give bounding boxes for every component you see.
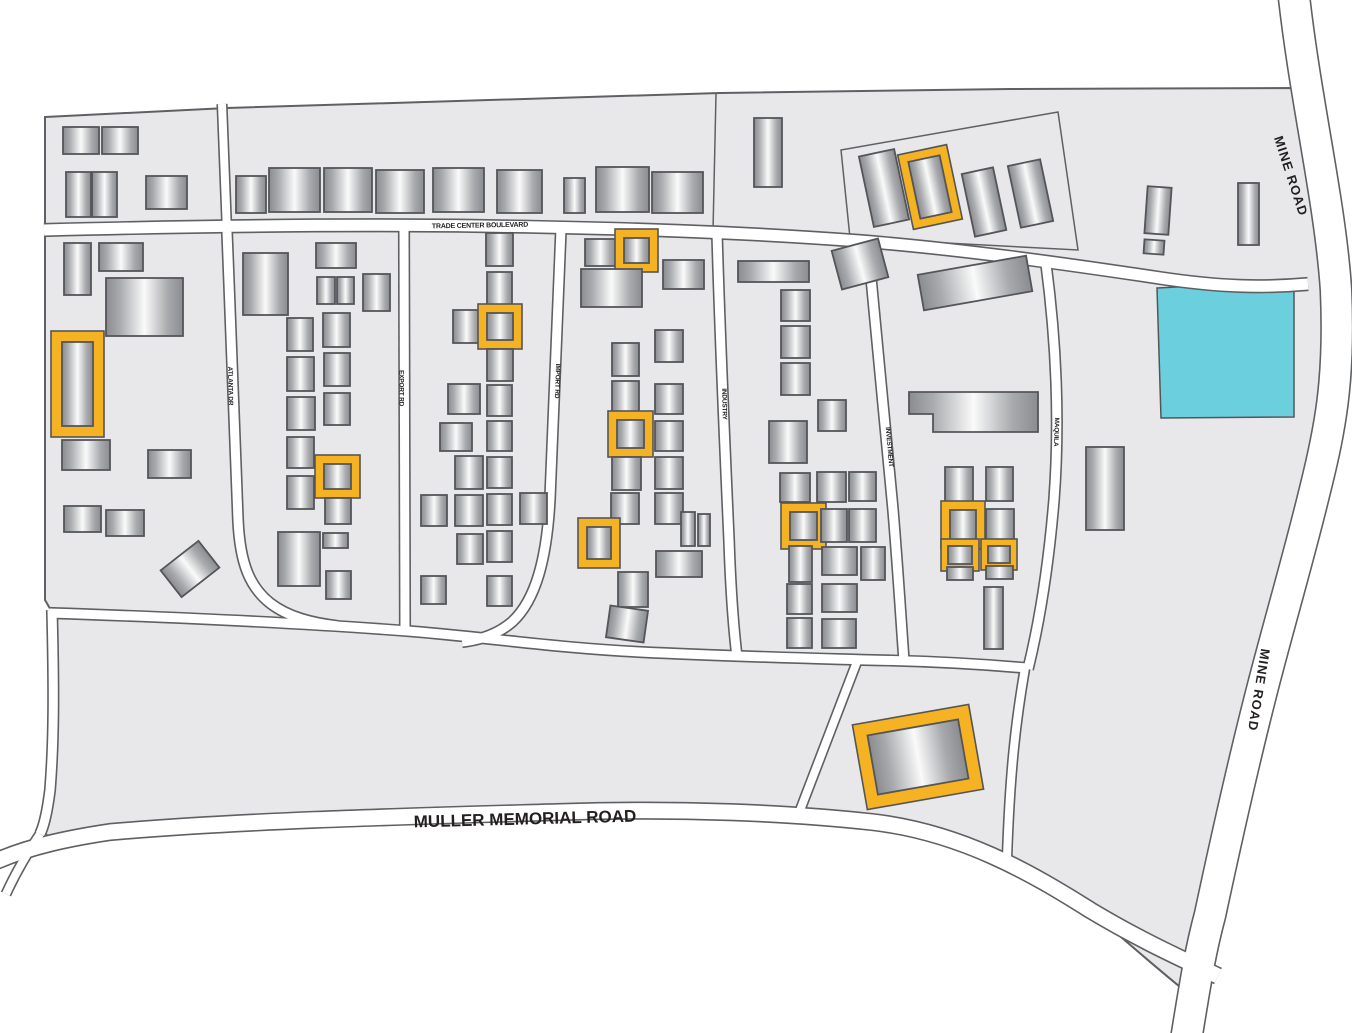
building[interactable] <box>618 572 648 607</box>
building-footprint <box>148 450 191 478</box>
building[interactable] <box>323 533 348 548</box>
building-footprint <box>457 534 483 564</box>
building-footprint <box>269 168 320 212</box>
building-footprint <box>421 495 447 526</box>
building-footprint <box>243 253 288 315</box>
building-footprint <box>323 313 350 347</box>
building[interactable] <box>1238 183 1259 245</box>
building-footprint <box>324 464 351 489</box>
building[interactable] <box>99 243 143 271</box>
building-footprint <box>287 318 313 351</box>
building[interactable] <box>453 310 480 343</box>
building[interactable] <box>487 421 512 451</box>
building-footprint <box>656 551 702 577</box>
building[interactable] <box>148 450 191 478</box>
building-footprint <box>323 533 348 548</box>
building-footprint <box>769 421 807 463</box>
building-footprint <box>612 457 641 490</box>
building[interactable] <box>606 606 648 643</box>
building-footprint <box>612 343 639 376</box>
building-footprint <box>440 423 472 451</box>
building[interactable] <box>596 167 649 212</box>
building-footprint <box>585 239 616 266</box>
building-footprint <box>655 330 683 362</box>
building[interactable] <box>324 353 350 386</box>
building[interactable] <box>236 176 266 213</box>
building-footprint <box>62 440 110 470</box>
building-footprint <box>421 576 446 604</box>
building-footprint <box>655 457 683 489</box>
highlighted-building[interactable] <box>578 518 620 568</box>
building[interactable] <box>433 168 484 212</box>
building-footprint <box>455 456 483 489</box>
building[interactable] <box>497 170 542 213</box>
building[interactable] <box>656 551 702 577</box>
building-footprint <box>363 274 390 311</box>
road-label: ATLANTA DR <box>226 367 234 406</box>
building-footprint <box>317 277 335 304</box>
building-footprint <box>821 509 847 542</box>
building-footprint <box>581 269 642 307</box>
building[interactable] <box>448 384 480 414</box>
building[interactable] <box>376 170 424 213</box>
road-export-rd <box>404 228 405 631</box>
building[interactable] <box>652 172 703 213</box>
building[interactable] <box>62 440 110 470</box>
building-footprint <box>947 567 973 580</box>
building-footprint <box>612 381 639 414</box>
road-label: IMPORT RD <box>553 364 561 399</box>
building-footprint <box>106 510 144 536</box>
building-footprint <box>663 260 704 289</box>
building-footprint <box>376 170 424 213</box>
building[interactable] <box>287 397 315 430</box>
building-footprint <box>92 172 117 217</box>
building[interactable] <box>63 127 99 154</box>
building[interactable] <box>64 506 101 532</box>
building[interactable] <box>92 172 117 217</box>
building-footprint <box>487 272 512 305</box>
highlighted-building[interactable] <box>615 229 658 272</box>
building-footprint <box>787 618 812 648</box>
building-footprint <box>287 357 314 391</box>
building-footprint <box>822 584 857 612</box>
building[interactable] <box>655 384 683 414</box>
building-footprint <box>316 243 356 268</box>
building[interactable] <box>787 618 812 648</box>
building[interactable] <box>324 168 372 212</box>
building-footprint <box>984 587 1003 649</box>
highlighted-building[interactable] <box>51 331 104 437</box>
building[interactable] <box>818 400 846 431</box>
road-label: MAQUILA <box>1052 417 1060 447</box>
building[interactable] <box>986 467 1013 501</box>
building-footprint <box>754 118 782 187</box>
building[interactable] <box>698 514 710 546</box>
building-footprint <box>1086 447 1124 530</box>
building[interactable] <box>487 576 512 606</box>
building-footprint <box>861 547 885 580</box>
building[interactable] <box>106 510 144 536</box>
building-footprint <box>487 349 513 381</box>
building[interactable] <box>789 546 812 582</box>
building-footprint <box>324 393 350 425</box>
building[interactable] <box>287 437 314 468</box>
building[interactable] <box>455 456 483 489</box>
building-footprint <box>781 326 810 358</box>
building-footprint <box>780 473 810 502</box>
building[interactable] <box>1086 447 1124 530</box>
building[interactable] <box>849 509 876 542</box>
building[interactable] <box>457 534 483 564</box>
building[interactable] <box>986 566 1013 579</box>
building-footprint <box>738 261 809 282</box>
building-footprint <box>618 572 648 607</box>
building-footprint <box>652 172 703 213</box>
cyan-parcel[interactable] <box>1157 281 1294 418</box>
road-label: INDUSTRY <box>720 388 728 420</box>
building[interactable] <box>769 421 807 463</box>
building[interactable] <box>337 277 354 304</box>
building[interactable] <box>564 178 585 213</box>
building[interactable] <box>781 363 810 395</box>
building[interactable] <box>612 343 639 376</box>
building[interactable] <box>487 531 512 562</box>
building-footprint <box>986 566 1013 579</box>
building-footprint <box>487 421 512 451</box>
building-footprint <box>822 547 857 575</box>
building-footprint <box>64 506 101 532</box>
building[interactable] <box>287 357 314 391</box>
building-footprint <box>681 512 695 546</box>
building-footprint <box>789 546 812 582</box>
building[interactable] <box>487 349 513 381</box>
building-footprint <box>945 467 973 503</box>
building-footprint <box>787 584 812 614</box>
building[interactable] <box>947 567 973 580</box>
highlighted-building[interactable] <box>478 304 522 349</box>
building[interactable] <box>655 421 683 451</box>
building-footprint <box>487 385 512 416</box>
building[interactable] <box>655 330 683 362</box>
building[interactable] <box>520 493 547 524</box>
building[interactable] <box>487 457 512 488</box>
building-footprint <box>487 494 512 525</box>
map-viewport[interactable]: MINE ROADMINE ROADTRADE CENTER BOULEVARD… <box>0 0 1352 1033</box>
highlighted-building[interactable] <box>315 455 360 498</box>
building-footprint <box>287 476 314 509</box>
building[interactable] <box>984 587 1003 649</box>
building[interactable] <box>326 571 351 599</box>
building-footprint <box>698 514 710 546</box>
building-footprint <box>99 243 143 271</box>
building[interactable] <box>324 393 350 425</box>
building[interactable] <box>269 168 320 212</box>
building-footprint <box>948 546 972 564</box>
building-footprint <box>817 472 846 502</box>
highlighted-building[interactable] <box>608 411 653 457</box>
building-footprint <box>325 498 351 524</box>
building-footprint <box>520 493 547 524</box>
building-footprint <box>818 400 846 431</box>
building-footprint <box>655 421 683 451</box>
building[interactable] <box>655 457 683 489</box>
building[interactable] <box>487 385 512 416</box>
building-footprint <box>1144 239 1165 254</box>
building[interactable] <box>278 532 320 586</box>
building[interactable] <box>323 313 350 347</box>
building[interactable] <box>106 278 183 336</box>
building-footprint <box>106 278 183 336</box>
building-footprint <box>781 290 810 321</box>
road-label: EXPORT RD <box>398 370 405 407</box>
building[interactable] <box>243 253 288 315</box>
building[interactable] <box>822 584 857 612</box>
building[interactable] <box>581 269 642 307</box>
building-footprint <box>497 170 542 213</box>
building-footprint <box>63 127 99 154</box>
building[interactable] <box>681 512 695 546</box>
building-footprint <box>1238 183 1259 245</box>
building[interactable] <box>781 326 810 358</box>
building[interactable] <box>287 476 314 509</box>
building-footprint <box>564 178 585 213</box>
building[interactable] <box>612 381 639 414</box>
building-footprint <box>146 176 187 209</box>
building-footprint <box>487 531 512 562</box>
building-footprint <box>986 467 1013 501</box>
building-footprint <box>849 509 876 542</box>
building[interactable] <box>822 547 857 575</box>
building-footprint <box>596 167 649 212</box>
building[interactable] <box>421 495 447 526</box>
building-footprint <box>624 238 649 263</box>
building-footprint <box>64 243 91 295</box>
building-footprint <box>487 576 512 606</box>
building-footprint <box>822 619 856 648</box>
building[interactable] <box>146 176 187 209</box>
building[interactable] <box>440 423 472 451</box>
building[interactable] <box>861 547 885 580</box>
building-footprint <box>433 168 484 212</box>
building[interactable] <box>585 239 616 266</box>
building[interactable] <box>822 619 856 648</box>
building[interactable] <box>1144 186 1171 235</box>
building-footprint <box>287 397 315 430</box>
building-footprint <box>236 176 266 213</box>
building-footprint <box>849 472 876 501</box>
building[interactable] <box>487 272 512 305</box>
building-footprint <box>326 571 351 599</box>
building[interactable] <box>287 318 313 351</box>
building[interactable] <box>325 498 351 524</box>
building-footprint <box>988 546 1010 563</box>
building-footprint <box>486 233 513 266</box>
building-footprint <box>455 495 483 526</box>
building-footprint <box>606 606 648 643</box>
building-footprint <box>324 353 350 386</box>
building-footprint <box>324 168 372 212</box>
building[interactable] <box>102 127 138 154</box>
building-footprint <box>487 457 512 488</box>
building-footprint <box>487 313 513 340</box>
building[interactable] <box>455 495 483 526</box>
building-footprint <box>986 509 1014 541</box>
building[interactable] <box>754 118 782 187</box>
highlighted-building[interactable] <box>781 503 826 549</box>
building-footprint <box>617 420 644 448</box>
building[interactable] <box>316 243 356 268</box>
building-footprint <box>790 512 817 540</box>
building[interactable] <box>64 243 91 295</box>
building-footprint <box>950 510 976 540</box>
building-footprint <box>655 384 683 414</box>
building[interactable] <box>1144 239 1165 254</box>
building[interactable] <box>787 584 812 614</box>
building[interactable] <box>821 509 847 542</box>
building[interactable] <box>817 472 846 502</box>
building-footprint <box>587 527 611 559</box>
building[interactable] <box>612 457 641 490</box>
map-canvas[interactable]: MINE ROADMINE ROADTRADE CENTER BOULEVARD… <box>0 0 1352 1033</box>
building[interactable] <box>655 493 683 524</box>
building-footprint <box>102 127 138 154</box>
building[interactable] <box>781 290 810 321</box>
building-footprint <box>781 363 810 395</box>
building-footprint <box>1144 186 1171 235</box>
building-footprint <box>278 532 320 586</box>
building[interactable] <box>317 277 335 304</box>
building-footprint <box>453 310 480 343</box>
building-footprint <box>337 277 354 304</box>
building[interactable] <box>363 274 390 311</box>
road-north-stub-road <box>222 104 227 232</box>
building[interactable] <box>486 233 513 266</box>
building-footprint <box>655 493 683 524</box>
building[interactable] <box>66 172 91 217</box>
building-footprint <box>287 437 314 468</box>
building[interactable] <box>421 576 446 604</box>
building-footprint <box>66 172 91 217</box>
building[interactable] <box>738 261 809 282</box>
building-footprint <box>448 384 480 414</box>
building[interactable] <box>849 472 876 501</box>
building-footprint <box>62 342 93 426</box>
building[interactable] <box>945 467 973 503</box>
building[interactable] <box>487 494 512 525</box>
building[interactable] <box>663 260 704 289</box>
building[interactable] <box>986 509 1014 541</box>
building[interactable] <box>780 473 810 502</box>
